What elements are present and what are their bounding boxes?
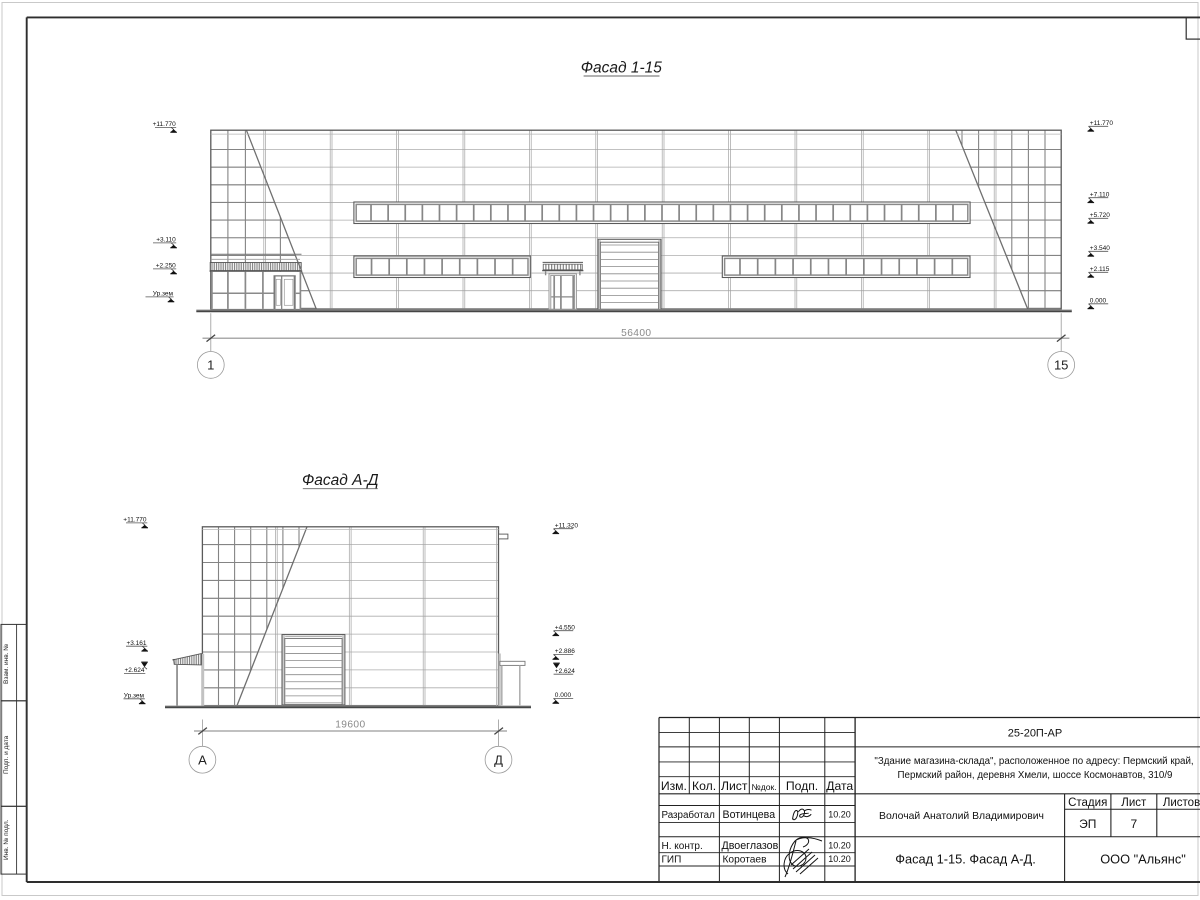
svg-text:10.20: 10.20 [828, 854, 851, 864]
svg-text:0.000: 0.000 [1090, 297, 1107, 304]
svg-text:Вотинцева: Вотинцева [723, 809, 776, 821]
svg-text:"Здание магазина-склада", расп: "Здание магазина-склада", расположенное … [874, 756, 1193, 767]
svg-text:Подп. и дата: Подп. и дата [3, 735, 10, 774]
svg-text:+5.720: +5.720 [1090, 212, 1110, 219]
svg-text:№док.: №док. [752, 782, 777, 792]
svg-text:Разработал: Разработал [662, 810, 716, 821]
svg-text:Д: Д [494, 752, 503, 767]
svg-text:Пермский район, деревня Хмели,: Пермский район, деревня Хмели, шоссе Кос… [898, 770, 1173, 781]
svg-text:Лист: Лист [1121, 797, 1147, 809]
svg-text:+2.250: +2.250 [156, 263, 176, 270]
svg-text:+11.320: +11.320 [555, 522, 579, 529]
svg-text:+4.550: +4.550 [555, 624, 575, 631]
svg-text:+11.770: +11.770 [1090, 120, 1114, 127]
svg-text:25-20П-АР: 25-20П-АР [1008, 728, 1062, 740]
svg-text:56400: 56400 [621, 328, 651, 339]
svg-text:Фасад А-Д: Фасад А-Д [302, 472, 379, 489]
svg-text:19600: 19600 [335, 720, 365, 731]
svg-text:Инв. № подл.: Инв. № подл. [3, 819, 10, 860]
svg-text:15: 15 [1054, 358, 1068, 373]
svg-text:Фасад 1-15: Фасад 1-15 [581, 60, 663, 77]
svg-text:ООО "Альянс": ООО "Альянс" [1100, 851, 1186, 866]
svg-text:ГИП: ГИП [662, 854, 682, 865]
svg-text:7: 7 [1130, 817, 1137, 831]
svg-text:Фасад 1-15. Фасад А-Д.: Фасад 1-15. Фасад А-Д. [895, 851, 1036, 866]
svg-text:0.000: 0.000 [555, 692, 572, 699]
svg-text:Стадия: Стадия [1068, 797, 1107, 809]
svg-text:+3.540: +3.540 [1090, 245, 1110, 252]
svg-text:ЭП: ЭП [1079, 817, 1096, 831]
svg-text:+11.770: +11.770 [123, 517, 147, 524]
svg-text:Н. контр.: Н. контр. [662, 841, 703, 852]
svg-text:Волочай Анатолий Владимирович: Волочай Анатолий Владимирович [879, 811, 1044, 822]
svg-text:+3.110: +3.110 [156, 237, 176, 244]
svg-text:Лист: Лист [721, 779, 748, 793]
svg-text:+2.115: +2.115 [1090, 266, 1110, 273]
svg-text:10.20: 10.20 [828, 841, 851, 851]
svg-text:Изм.: Изм. [661, 779, 687, 793]
svg-text:Коротаев: Коротаев [723, 854, 767, 865]
svg-text:+2.624: +2.624 [124, 667, 144, 674]
svg-text:Двоеглазов: Двоеглазов [722, 840, 779, 852]
svg-text:Кол.: Кол. [692, 779, 716, 793]
svg-text:10.20: 10.20 [828, 810, 851, 820]
svg-text:+11.770: +11.770 [153, 121, 177, 128]
svg-text:А: А [198, 752, 207, 767]
svg-text:1: 1 [207, 358, 214, 373]
svg-text:Ур.зем: Ур.зем [153, 291, 174, 298]
svg-text:+7.110: +7.110 [1090, 191, 1110, 198]
svg-text:Дата: Дата [826, 779, 853, 793]
svg-text:+2.624: +2.624 [555, 668, 575, 675]
svg-text:+2.886: +2.886 [555, 648, 575, 655]
svg-text:+3.161: +3.161 [126, 640, 146, 647]
svg-text:Листов: Листов [1163, 797, 1200, 809]
svg-text:Взам. инв. №: Взам. инв. № [3, 644, 10, 684]
svg-text:Подп.: Подп. [786, 779, 818, 793]
svg-text:Ур.зем: Ур.зем [124, 692, 145, 699]
